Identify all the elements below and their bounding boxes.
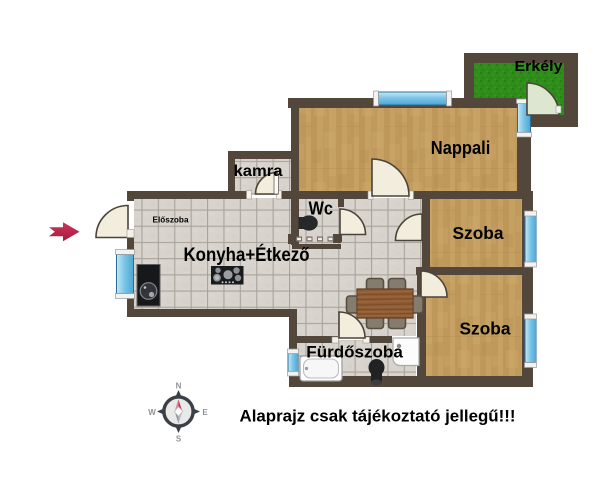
svg-text:S: S (176, 435, 182, 444)
svg-text:kamra: kamra (234, 163, 283, 180)
svg-text:Fürdőszoba: Fürdőszoba (306, 342, 403, 361)
svg-text:Előszoba: Előszoba (153, 215, 189, 225)
svg-text:Szoba: Szoba (460, 319, 511, 339)
svg-text:N: N (176, 382, 182, 391)
svg-text:W: W (148, 408, 156, 417)
svg-text:Szoba: Szoba (453, 223, 504, 243)
svg-text:Konyha+Étkező: Konyha+Étkező (184, 244, 310, 266)
svg-text:Alaprajz csak tájékoztató jell: Alaprajz csak tájékoztató jellegű!!! (240, 408, 516, 426)
svg-text:E: E (202, 408, 208, 417)
svg-text:Wc: Wc (309, 198, 334, 218)
svg-text:Erkély: Erkély (515, 59, 563, 75)
svg-text:Nappali: Nappali (431, 137, 491, 158)
